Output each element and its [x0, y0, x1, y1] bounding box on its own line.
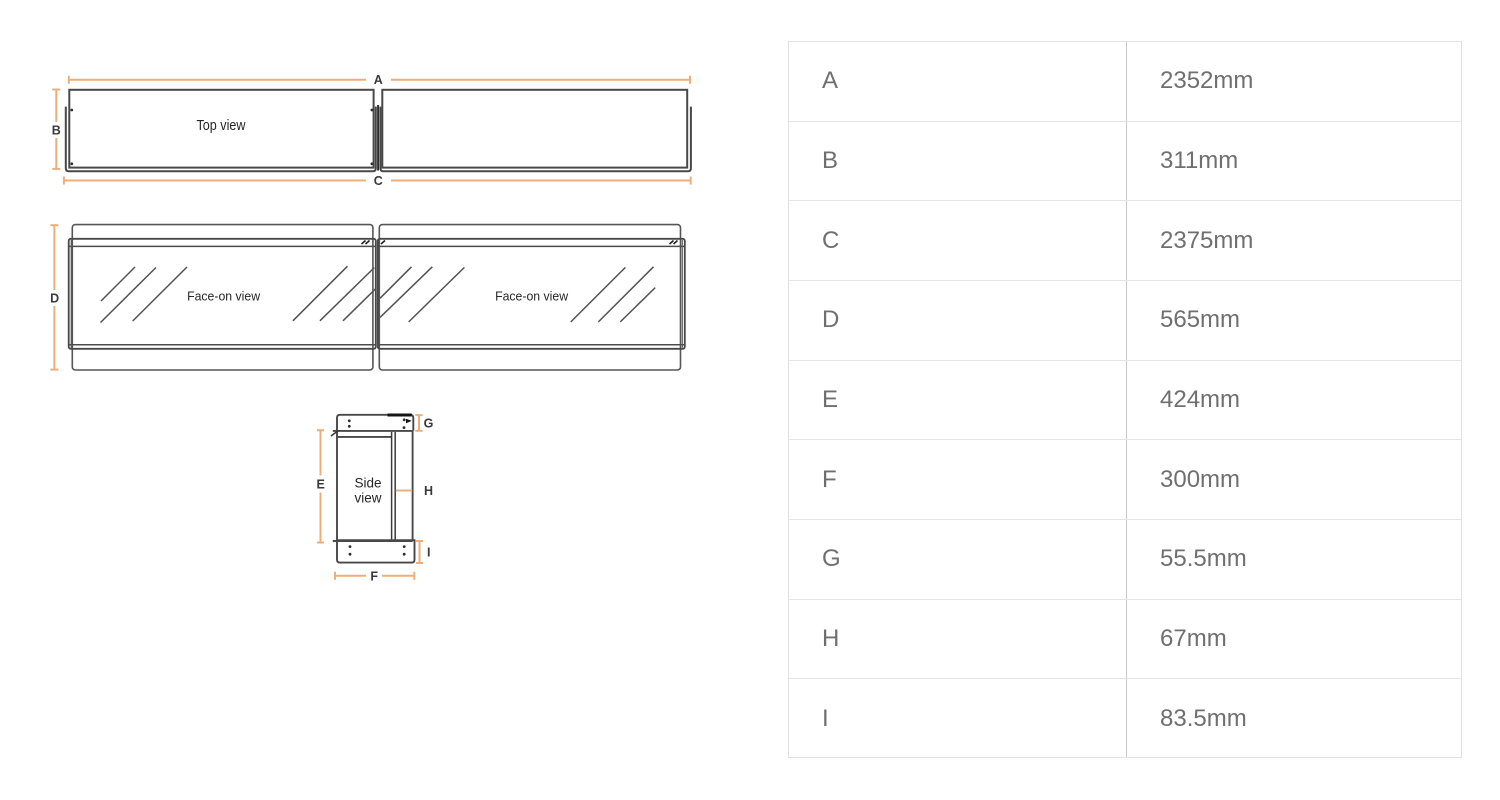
svg-text:Side: Side	[354, 476, 381, 491]
svg-text:I: I	[427, 546, 430, 560]
svg-text:view: view	[354, 491, 381, 506]
svg-text:G: G	[424, 417, 434, 431]
svg-text:C: C	[374, 174, 383, 188]
svg-text:D: D	[50, 291, 59, 305]
svg-text:F: F	[370, 569, 378, 583]
svg-text:A: A	[374, 73, 383, 87]
svg-text:Face-on view: Face-on view	[187, 289, 261, 304]
svg-text:Face-on view: Face-on view	[495, 289, 569, 304]
svg-text:H: H	[424, 484, 433, 498]
svg-text:B: B	[52, 124, 61, 138]
svg-text:Top view: Top view	[197, 117, 246, 134]
svg-text:E: E	[317, 477, 325, 491]
